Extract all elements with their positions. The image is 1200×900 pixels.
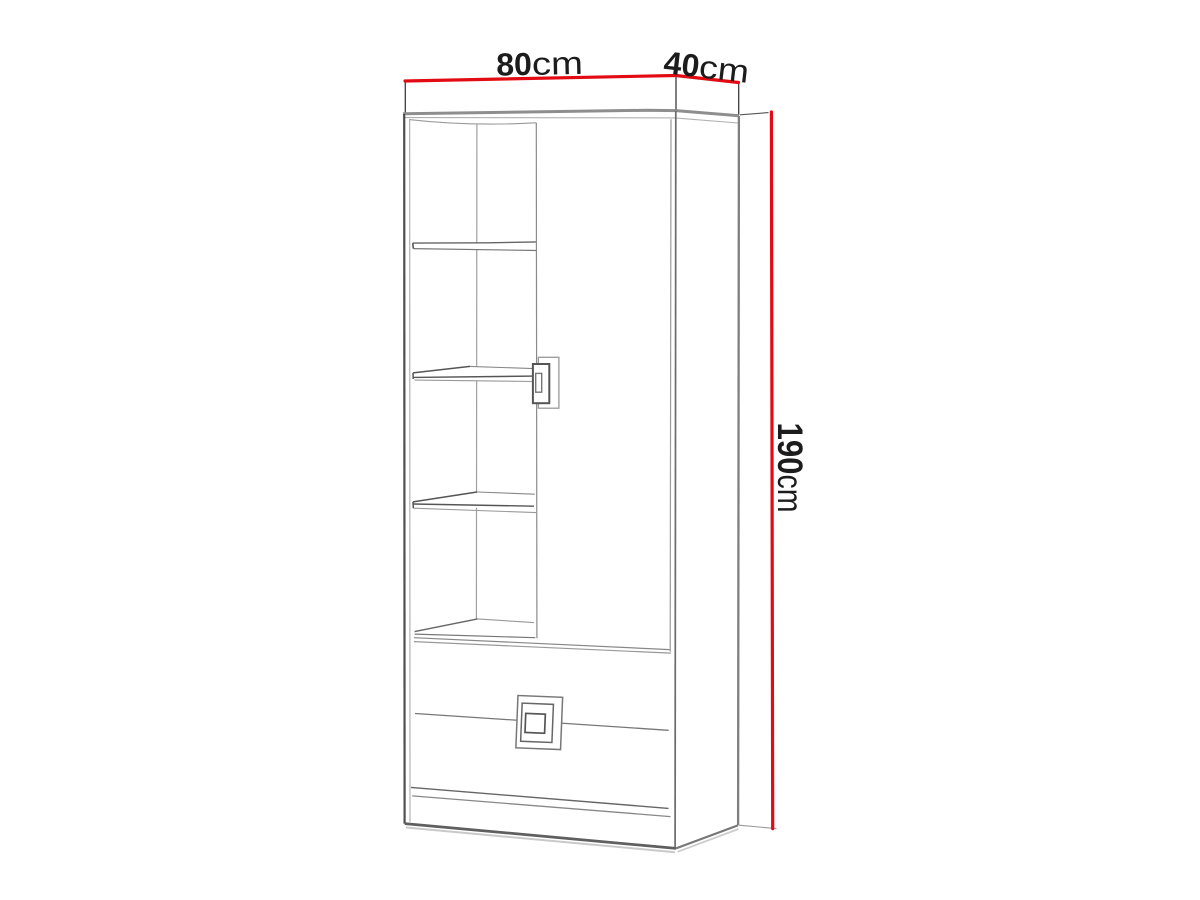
svg-text:190cm: 190cm bbox=[770, 423, 809, 513]
svg-text:80cm: 80cm bbox=[496, 45, 583, 83]
